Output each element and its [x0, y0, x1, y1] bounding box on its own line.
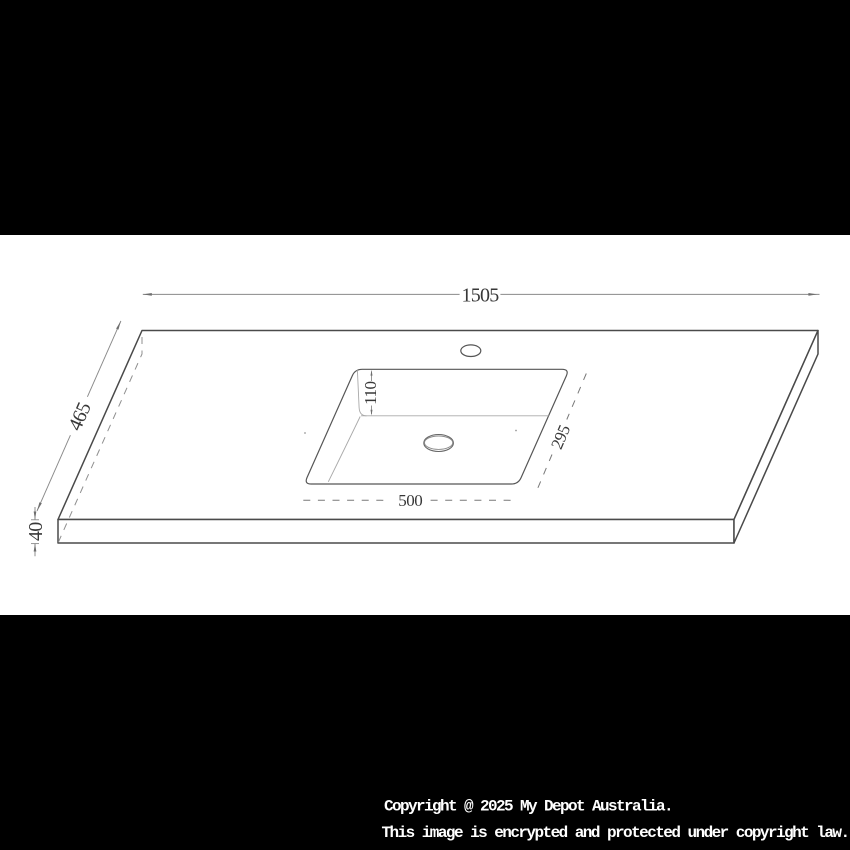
- svg-text:Copyright @ 2025 My Depot Aust: Copyright @ 2025 My Depot Australia.: [384, 798, 672, 816]
- svg-text:40: 40: [25, 522, 47, 541]
- svg-text:500: 500: [398, 491, 422, 510]
- svg-text:This image is encrypted and pr: This image is encrypted and protected un…: [382, 824, 849, 842]
- svg-text:110: 110: [361, 382, 380, 405]
- svg-text:1505: 1505: [462, 285, 500, 307]
